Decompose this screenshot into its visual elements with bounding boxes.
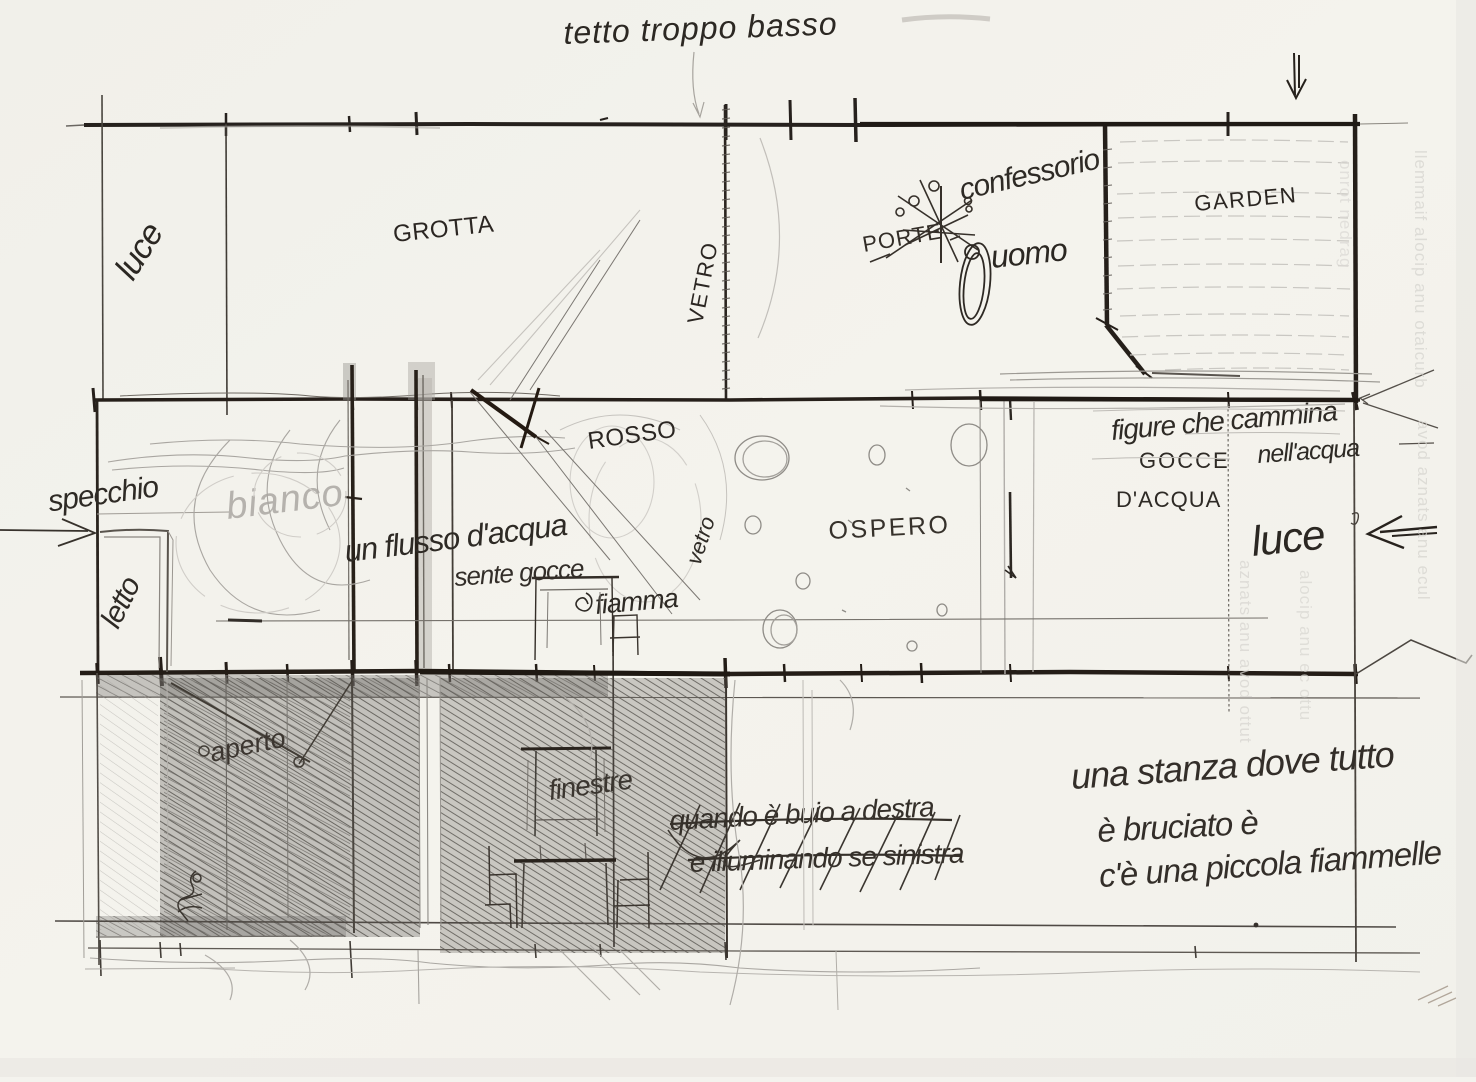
svg-text:avod aznats anu ecul: avod aznats anu ecul — [1414, 420, 1433, 601]
svg-text:luce: luce — [1249, 511, 1327, 565]
svg-text:D'ACQUA: D'ACQUA — [1116, 487, 1221, 512]
svg-text:aznats anu avod ottut: aznats anu avod ottut — [1236, 560, 1255, 744]
svg-text:alocip anu ec ottu: alocip anu ec ottu — [1296, 570, 1315, 721]
svg-text:GOCCE: GOCCE — [1139, 448, 1230, 473]
svg-text:llemmaif alocip anu otaicurb: llemmaif alocip anu otaicurb — [1411, 150, 1430, 389]
svg-text:onrot nedrag: onrot nedrag — [1336, 160, 1355, 268]
